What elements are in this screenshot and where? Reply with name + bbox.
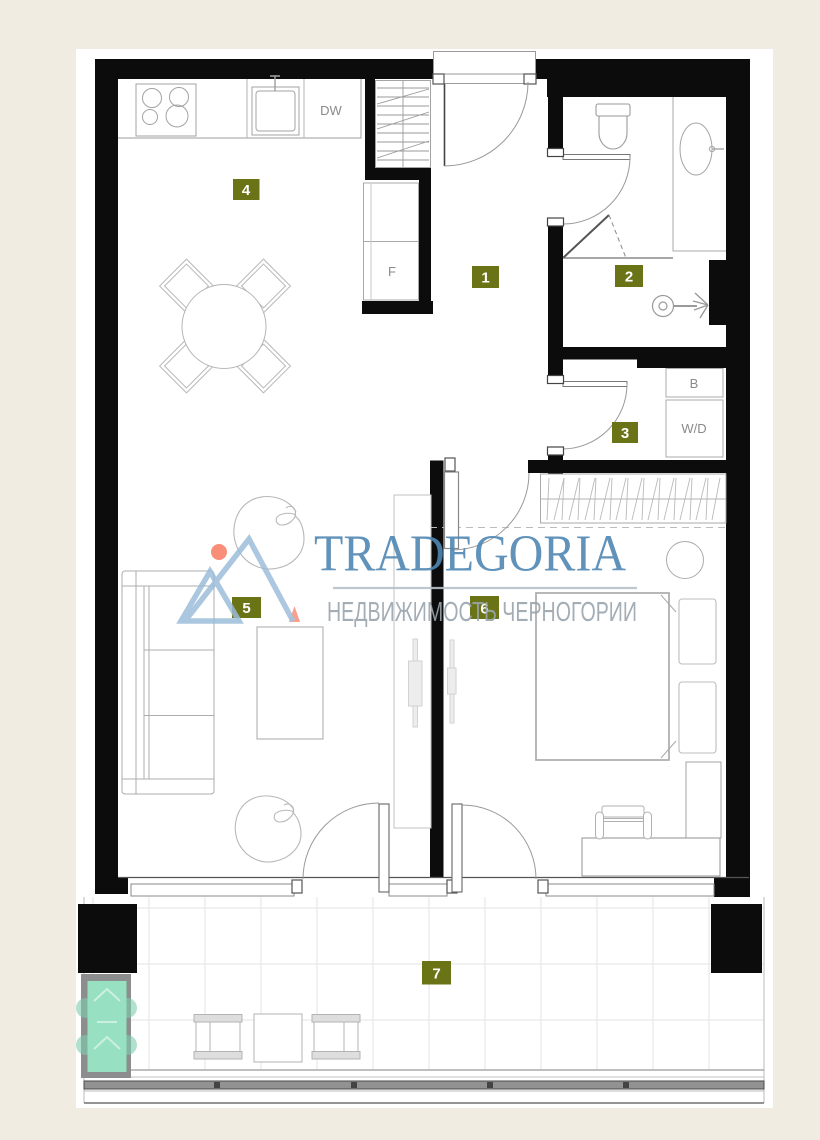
svg-text:7: 7 [432,966,440,983]
svg-text:3: 3 [621,425,629,442]
svg-text:F: F [388,264,396,279]
svg-text:2: 2 [625,269,633,286]
svg-text:4: 4 [242,182,251,199]
svg-text:1: 1 [481,270,489,287]
svg-text:B: B [690,376,699,391]
svg-text:W/D: W/D [681,421,706,436]
svg-text:5: 5 [242,600,250,617]
svg-text:DW: DW [320,103,342,118]
svg-text:TRADEGORIA: TRADEGORIA [314,526,626,583]
svg-text:НЕДВИЖИМОСТЬ ЧЕРНОГОРИИ: НЕДВИЖИМОСТЬ ЧЕРНОГОРИИ [327,596,637,627]
